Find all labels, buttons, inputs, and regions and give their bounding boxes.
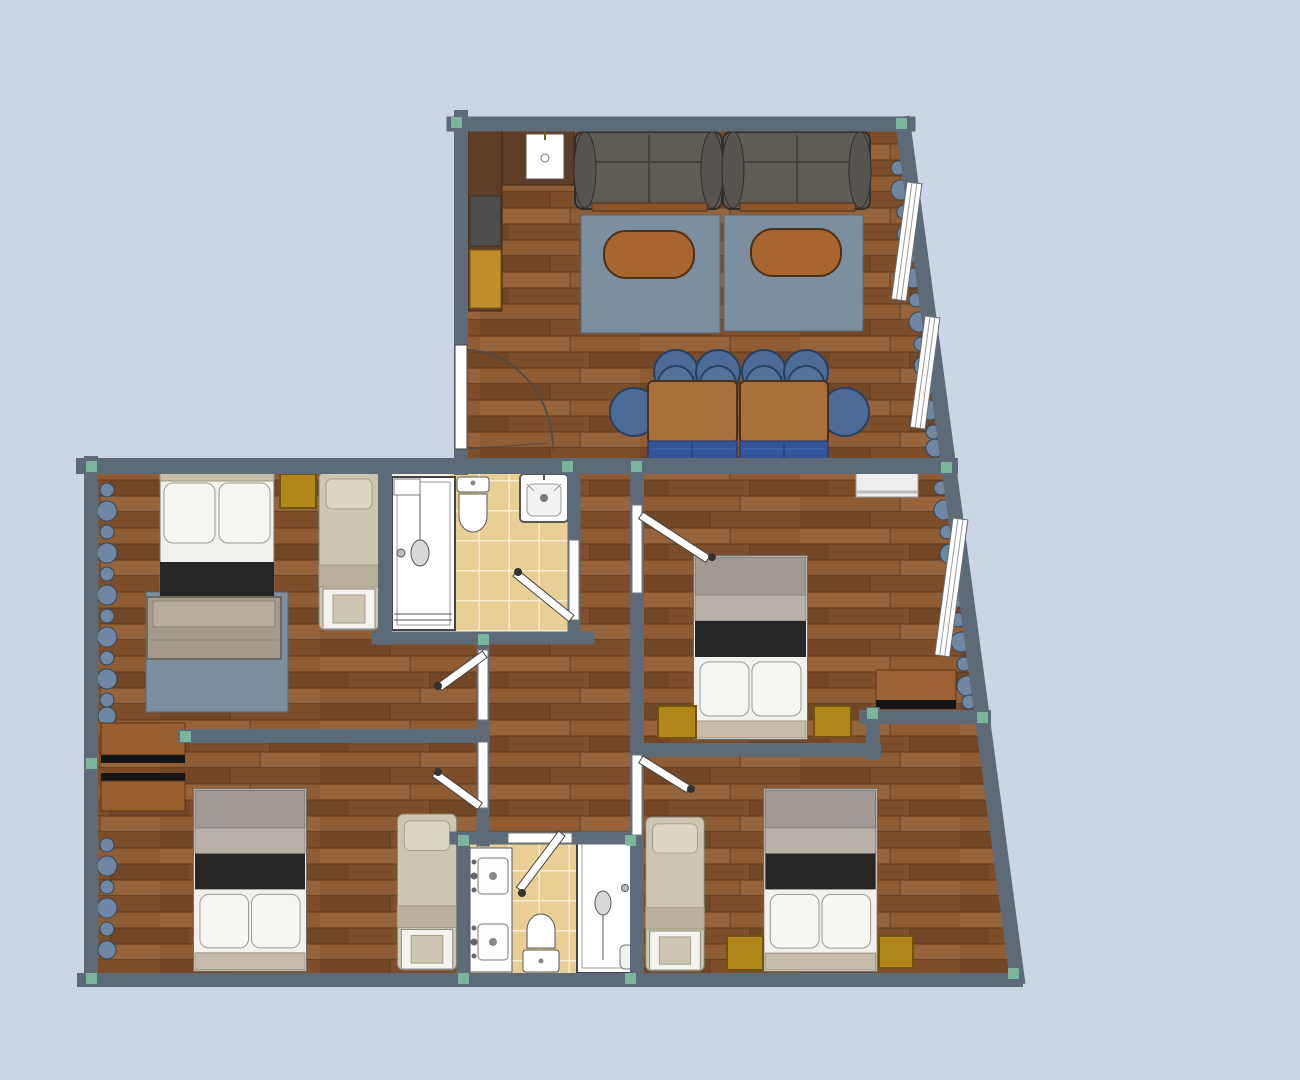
coffee-table-right[interactable] (751, 229, 841, 276)
single-bed-bottom-right[interactable] (646, 817, 705, 971)
stove[interactable] (470, 196, 501, 246)
sofa-right[interactable] (722, 132, 871, 211)
coffee-table-left[interactable] (604, 231, 694, 278)
nightstand-br-left[interactable] (727, 936, 763, 970)
toilet-bottom-bathroom[interactable] (523, 914, 559, 972)
double-sink-bottom-bathroom[interactable] (470, 848, 512, 972)
bathroom-top (392, 468, 574, 633)
double-bed-bottom-left[interactable] (193, 789, 306, 971)
kitchen-cabinet[interactable] (470, 250, 501, 308)
nightstand-mr-right[interactable] (814, 706, 851, 737)
double-bed-middle-right[interactable] (694, 556, 808, 740)
kitchen-sink[interactable] (526, 128, 564, 179)
wardrobe-1[interactable] (101, 723, 185, 763)
nightstand-middle-left[interactable] (280, 474, 316, 508)
floor-plan-canvas (0, 0, 1300, 1080)
sofa-left[interactable] (574, 132, 723, 211)
dining-table-right[interactable] (740, 381, 828, 443)
dining-table-left[interactable] (648, 381, 737, 443)
toilet-top-bathroom[interactable] (457, 477, 489, 532)
nightstand-br-right[interactable] (879, 936, 913, 968)
double-bed-bottom-right[interactable] (764, 788, 877, 971)
bathroom-bottom (470, 833, 637, 976)
shower-bottom-bathroom[interactable] (577, 833, 637, 973)
wardrobe-2[interactable] (101, 773, 185, 811)
shower-top-bathroom[interactable] (392, 477, 455, 630)
nightstand-mr-left[interactable] (658, 706, 696, 738)
floor-plan (0, 0, 1300, 1080)
bed-bench[interactable] (147, 597, 281, 659)
shelf-unit[interactable] (856, 471, 918, 497)
single-bed-bottom-left[interactable] (397, 814, 456, 970)
desk-middle-right[interactable] (876, 670, 956, 709)
single-bed-middle-left[interactable] (319, 472, 379, 630)
sink-top-bathroom[interactable] (520, 468, 568, 522)
